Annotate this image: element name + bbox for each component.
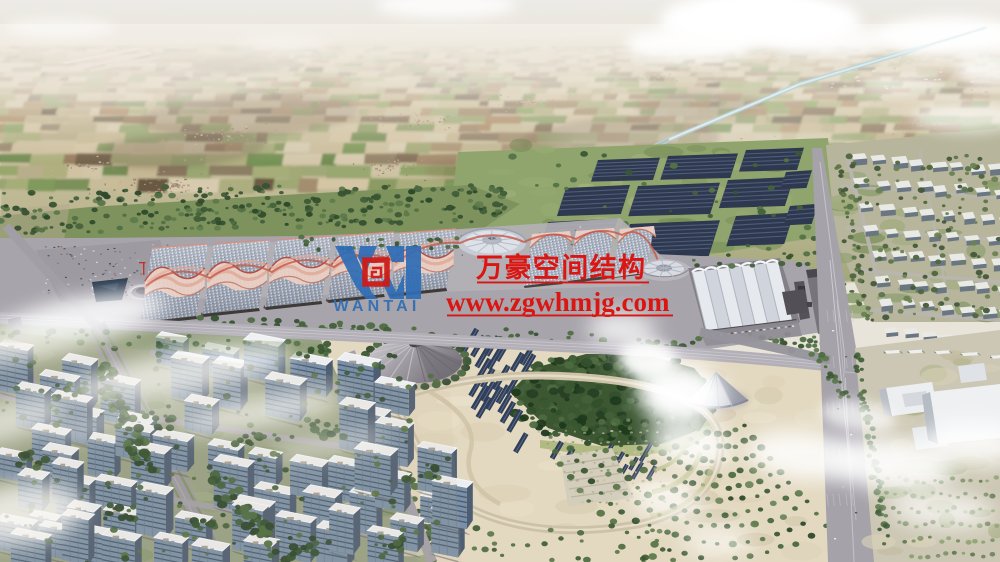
svg-text:www.zgwhmjg.com: www.zgwhmjg.com xyxy=(446,287,670,317)
svg-text:万豪空间结构: 万豪空间结构 xyxy=(476,252,646,283)
svg-text:WANTAI: WANTAI xyxy=(333,298,420,315)
